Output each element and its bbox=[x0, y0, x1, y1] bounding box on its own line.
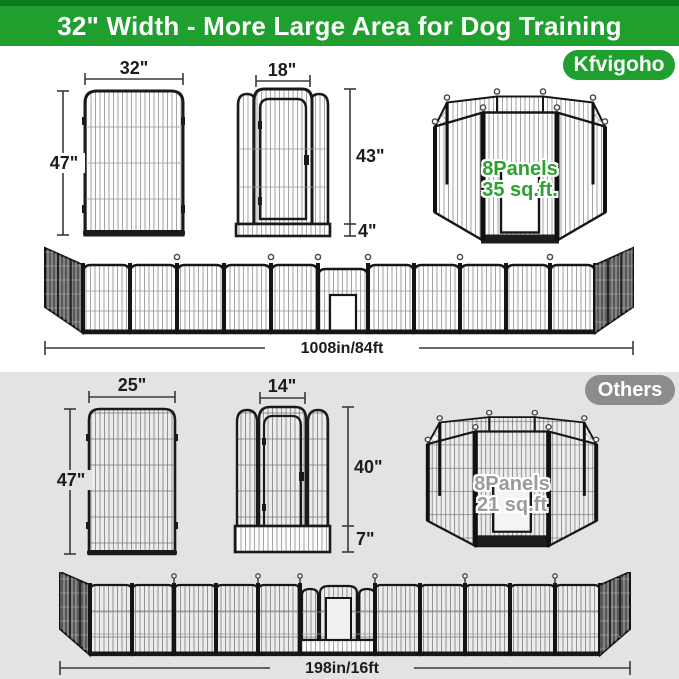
brand-section: Kfvigoho 32" 47" bbox=[0, 46, 679, 372]
others-section: Others 25" 47" bbox=[0, 372, 679, 679]
brand-pen-diagram: 8Panels 35 sq.ft. bbox=[415, 87, 625, 252]
others-fence-diagram: 198in/16ft bbox=[30, 572, 655, 679]
brand-door-width-label: 18" bbox=[254, 61, 310, 79]
others-pen-area-label: 21 sq.ft bbox=[408, 495, 616, 515]
brand-panel-height-label: 47" bbox=[43, 153, 85, 173]
others-pen-caption: 8Panels 21 sq.ft bbox=[408, 474, 616, 515]
others-door-height-label: 40" bbox=[354, 458, 388, 476]
brand-door-bottom-label: 4" bbox=[358, 222, 386, 240]
brand-fence-diagram: 1008in/84ft bbox=[30, 245, 655, 360]
brand-door-height-label: 43" bbox=[356, 147, 390, 165]
others-badge: Others bbox=[585, 375, 675, 405]
others-badge-label: Others bbox=[598, 379, 662, 402]
brand-door-panel-diagram: 18" 43" 4" bbox=[210, 59, 390, 244]
banner-title: 32" Width - More Large Area for Dog Trai… bbox=[57, 11, 622, 42]
others-door-width-label: 14" bbox=[254, 377, 310, 395]
product-infographic: 32" Width - More Large Area for Dog Trai… bbox=[0, 0, 679, 679]
others-pen-panels-label: 8Panels bbox=[408, 474, 616, 494]
brand-fence-length-label: 1008in/84ft bbox=[265, 340, 419, 358]
brand-panel-diagram: 32" 47" bbox=[35, 59, 200, 244]
others-panel-height-label: 47" bbox=[50, 470, 92, 490]
others-fence-length-label: 198in/16ft bbox=[270, 660, 414, 678]
others-pen-diagram: 8Panels 21 sq.ft bbox=[408, 410, 616, 555]
brand-panel-width-label: 32" bbox=[85, 59, 183, 77]
brand-pen-area-label: 35 sq.ft. bbox=[415, 180, 625, 200]
others-panel-diagram: 25" 47" bbox=[35, 374, 200, 564]
brand-pen-caption: 8Panels 35 sq.ft. bbox=[415, 159, 625, 200]
headline-banner: 32" Width - More Large Area for Dog Trai… bbox=[0, 6, 679, 46]
others-panel-drawing bbox=[35, 374, 200, 564]
brand-pen-panels-label: 8Panels bbox=[415, 159, 625, 179]
others-door-bottom-label: 7" bbox=[356, 530, 384, 548]
brand-panel-drawing bbox=[35, 59, 200, 244]
others-door-panel-diagram: 14" 40" 7" bbox=[212, 374, 392, 564]
brand-badge: Kfvigoho bbox=[563, 50, 675, 80]
brand-badge-label: Kfvigoho bbox=[574, 53, 665, 77]
others-panel-width-label: 25" bbox=[89, 376, 175, 394]
